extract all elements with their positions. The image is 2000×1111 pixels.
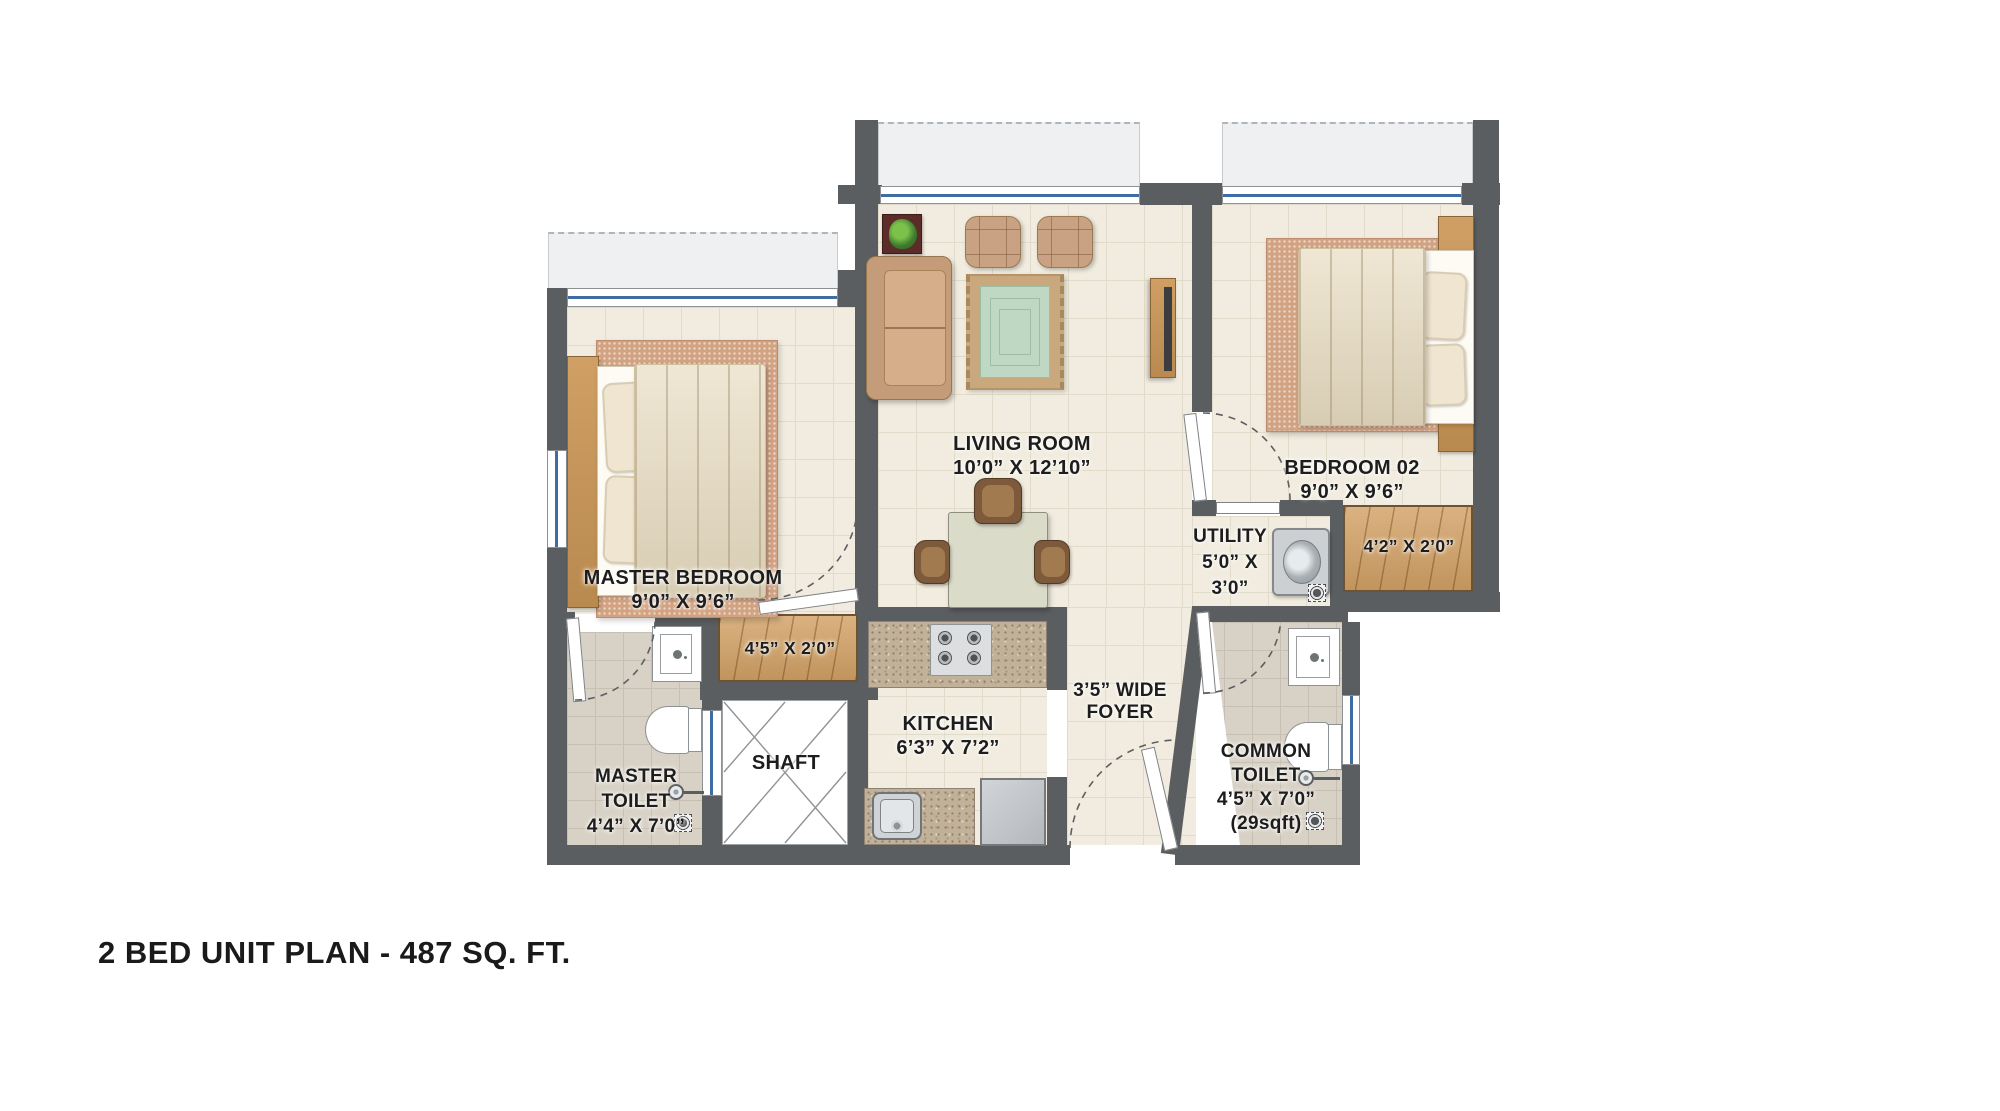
wall-left-outer-upper [547,288,567,450]
master-wardrobe-label: 4’5” X 2’0” [745,638,836,659]
utility-door-leaf [1216,502,1280,514]
chair-cushion [982,485,1014,517]
master-toilet-wc [645,706,691,754]
shower-arm [1314,777,1340,780]
room-dims: 10’0” X 12’10” [953,456,1091,480]
living-room-window [880,186,1140,204]
sink-icon [872,792,922,840]
bedroom02-wardrobe-label: 4’2” X 2’0” [1364,536,1455,557]
bedroom02-label: BEDROOM 02 9’0” X 9’6” [1284,456,1419,504]
foyer-label: 3’5” WIDE FOYER [1073,680,1167,724]
living-room-label: LIVING ROOM 10’0” X 12’10” [953,432,1091,480]
wall-wardrobe-b2-bottom [1330,592,1500,612]
utility-label: UTILITY 5’0” X 3’0” [1193,524,1267,602]
room-name: TOILET [587,789,685,814]
room-dims: 9’0” X 9’6” [584,590,783,614]
room-dims: 4’4” X 7’0” [587,814,685,839]
common-toilet-window [1342,695,1360,765]
hob-icon [930,624,992,676]
basin-tap [1310,653,1319,662]
dining-chair-icon [1034,540,1070,584]
wall-balcony-divider [1140,183,1222,205]
common-toilet-wc-tank [1328,724,1342,770]
master-toilet-basin [652,626,702,682]
room-name: MASTER [587,764,685,789]
fridge-icon [980,778,1046,846]
dining-chair-icon [914,540,950,584]
sofa-icon [866,256,952,400]
room-dims: 9’0” X 9’6” [1284,480,1419,504]
page-title: 2 BED UNIT PLAN - 487 SQ. FT. [98,935,571,971]
room-name: COMMON [1217,740,1315,764]
wall-basin-wardrobe-divider [700,612,718,700]
bedroom02-bed-pillow [1419,343,1467,407]
floor-plan-page: LIVING ROOM 10’0” X 12’10” MASTER BEDROO… [0,0,2000,1111]
room-dims: 5’0” X [1193,550,1267,576]
common-toilet-basin [1288,628,1340,686]
dining-table-icon [948,512,1048,608]
basin-tap [673,650,682,659]
wall-master-wardrobe-bottom [700,682,878,700]
plant-leaves [889,219,917,249]
wall-top-living-left-stub [838,185,882,204]
master-toilet-label: MASTER TOILET 4’4” X 7’0” [587,764,685,839]
wall-bottom-right [1175,845,1360,865]
chair-cushion [921,547,945,577]
room-dims: 4’5” X 7’0” [1217,788,1315,812]
living-rug-icon [966,274,1064,390]
room-name: BEDROOM 02 [1284,456,1419,480]
room-name: MASTER BEDROOM [584,566,783,590]
master-bedroom-balcony [548,232,838,288]
common-toilet-label: COMMON TOILET 4’5” X 7’0” (29sqft) [1217,740,1315,836]
shaft-label: SHAFT [752,752,820,775]
master-bed-blanket [634,364,766,598]
master-bedroom-side-window [547,450,567,548]
room-dims: 6’3” X 7’2” [896,736,999,760]
shaft-left-window [702,710,722,796]
room-name: 3’5” WIDE [1073,680,1167,702]
living-rug-center [980,286,1050,378]
kitchen-label: KITCHEN 6’3” X 7’2” [896,712,999,760]
room-name: TOILET [1217,764,1315,788]
wall-right-outer [1473,120,1499,593]
room-name: KITCHEN [896,712,999,736]
tv-unit-icon [1150,278,1176,378]
wall-kitchen-top [868,607,1067,621]
pouf-icon [965,216,1021,268]
wall-utility-bottom [1192,606,1348,622]
washing-machine-drum [1283,540,1321,584]
bedroom02-window [1222,186,1462,204]
tv-screen [1164,287,1172,371]
master-bedroom-window [567,288,838,307]
burner [938,631,952,645]
room-dims: 3’0” [1193,576,1267,602]
burner [967,651,981,665]
wall-bedroom02-left-upper [1192,204,1212,412]
wall-left-outer-lower [547,548,567,865]
burner [938,651,952,665]
chair-cushion [1041,547,1065,577]
sink-faucet [891,820,903,832]
wall-kitchen-right-lower [1047,777,1067,845]
master-bedroom-label: MASTER BEDROOM 9’0” X 9’6” [584,566,783,614]
wall-common-toilet-right-upper [1342,622,1360,695]
utility-floor-drain-icon [1308,584,1326,602]
master-toilet-wc-tank [688,708,702,752]
pouf-icon [1037,216,1093,268]
plant-icon [882,214,922,254]
room-name: FOYER [1073,702,1167,724]
burner [967,631,981,645]
room-name: UTILITY [1193,524,1267,550]
room-area: (29sqft) [1217,812,1315,836]
rug-pattern [999,309,1031,355]
living-room-balcony [878,122,1140,186]
sofa-seat-divider [885,327,945,329]
wall-bedroom02-left-stub [1192,500,1216,516]
wall-bottom-left [547,845,1070,865]
bedroom02-bed-blanket [1298,248,1426,426]
dining-chair-icon [974,478,1022,524]
bedroom02-balcony [1222,122,1473,186]
room-name: LIVING ROOM [953,432,1091,456]
shower-arm [684,791,704,794]
wall-kitchen-right-upper [1047,607,1067,690]
